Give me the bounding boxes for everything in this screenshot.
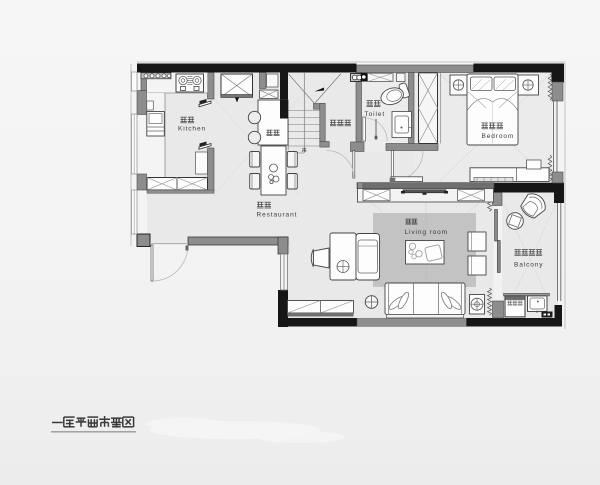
svg-text:Balcony: Balcony — [514, 262, 543, 269]
svg-text:Kitchen: Kitchen — [178, 126, 206, 133]
svg-text:Toilet: Toilet — [365, 111, 386, 118]
svg-text:Restaurant: Restaurant — [257, 212, 298, 219]
svg-text:Bedroom: Bedroom — [482, 133, 515, 140]
svg-text:Living room: Living room — [405, 229, 449, 236]
